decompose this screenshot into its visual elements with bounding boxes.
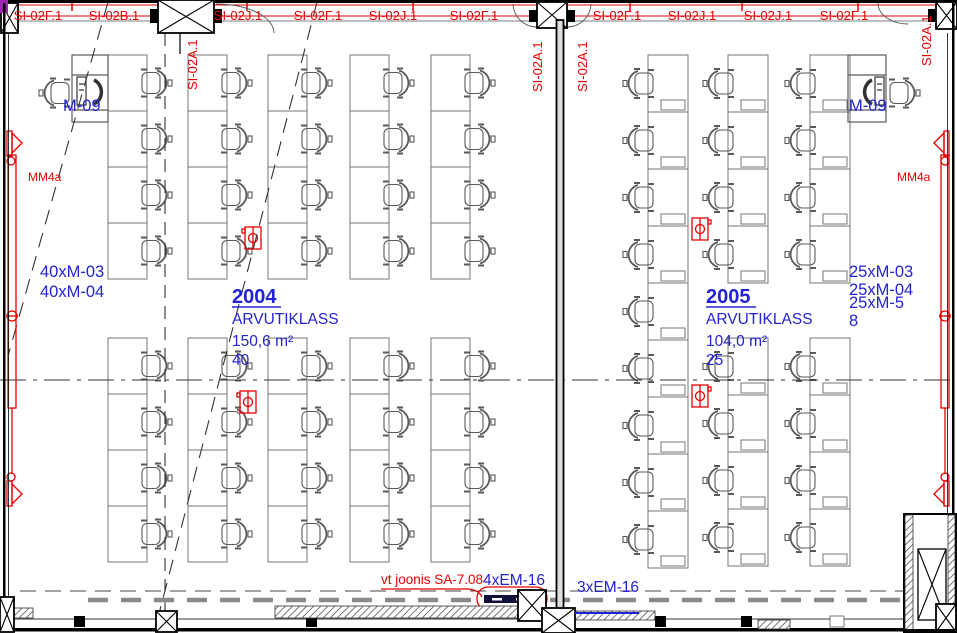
desk-computer bbox=[661, 157, 685, 167]
desk-computer bbox=[741, 497, 765, 507]
desk bbox=[431, 450, 470, 506]
desk-computer bbox=[741, 100, 765, 110]
stair-shaft bbox=[904, 514, 957, 633]
room-seats: 40 bbox=[232, 352, 250, 369]
furniture-code: 25xM-5 bbox=[849, 294, 904, 312]
desk bbox=[108, 338, 147, 394]
column bbox=[156, 611, 177, 632]
desk bbox=[431, 167, 470, 223]
desk bbox=[268, 223, 307, 279]
column bbox=[542, 608, 575, 633]
wall-equipment-label: MM4a bbox=[897, 170, 931, 184]
desk-computer bbox=[741, 440, 765, 450]
room-number: 2004 bbox=[232, 286, 277, 308]
hatched-wall bbox=[758, 620, 790, 629]
desk-computer bbox=[823, 497, 847, 507]
desk-computer bbox=[823, 214, 847, 224]
desk bbox=[350, 450, 389, 506]
duct-label-vertical: SI-02A.1 bbox=[575, 41, 590, 92]
desk bbox=[431, 223, 470, 279]
desk bbox=[350, 223, 389, 279]
hatched-wall bbox=[275, 606, 518, 618]
desk-computer bbox=[661, 385, 685, 395]
furniture-code: 40xM-04 bbox=[40, 283, 104, 301]
duct-label: SI-02F.1 bbox=[14, 8, 62, 23]
desk-computer bbox=[661, 328, 685, 338]
desk-computer bbox=[823, 100, 847, 110]
duct-label-vertical: SI-02A.1 bbox=[185, 39, 200, 90]
desk bbox=[268, 394, 307, 450]
duct-label-vertical: SI-02A.1 bbox=[530, 41, 545, 92]
equipment-code: 4xEM-16 bbox=[483, 572, 545, 589]
column bbox=[158, 0, 214, 33]
desk bbox=[268, 506, 307, 562]
column bbox=[0, 597, 14, 632]
duct-label: SI-02J.1 bbox=[214, 8, 262, 23]
desk-computer bbox=[823, 554, 847, 564]
desk bbox=[188, 223, 227, 279]
duct-label-vertical: SI-02A.1 bbox=[919, 15, 934, 66]
room-name: ARVUTIKLASS bbox=[232, 311, 339, 328]
duct-label: SI-02F.1 bbox=[450, 8, 498, 23]
desk-computer bbox=[741, 157, 765, 167]
furniture-code: 25xM-03 bbox=[849, 263, 913, 281]
desk bbox=[108, 55, 147, 111]
desk bbox=[188, 111, 227, 167]
duct-label: SI-02J.1 bbox=[744, 8, 792, 23]
duct-label: SI-02J.1 bbox=[369, 8, 417, 23]
hatched-wall bbox=[13, 608, 33, 618]
duct-label: SI-02J.1 bbox=[668, 8, 716, 23]
wall-equipment-label: MM4a bbox=[28, 170, 62, 184]
desk bbox=[350, 55, 389, 111]
duct-label: SI-02F.1 bbox=[593, 8, 641, 23]
partition-wall bbox=[557, 20, 564, 612]
desk bbox=[350, 111, 389, 167]
desk-computer bbox=[661, 214, 685, 224]
desk bbox=[108, 223, 147, 279]
room-area: 150,6 m² bbox=[232, 333, 293, 350]
furniture-code: 40xM-03 bbox=[40, 263, 104, 281]
desk bbox=[350, 394, 389, 450]
desk-computer bbox=[823, 383, 847, 393]
desk bbox=[188, 506, 227, 562]
desk-computer bbox=[823, 271, 847, 281]
room-area: 104,0 m² bbox=[706, 333, 767, 350]
duct-label: SI-02F.1 bbox=[820, 8, 868, 23]
desk bbox=[108, 450, 147, 506]
desk bbox=[108, 111, 147, 167]
desk bbox=[431, 338, 470, 394]
room-name: ARVUTIKLASS bbox=[706, 311, 813, 328]
equipment-code: 3xEM-16 bbox=[577, 579, 639, 596]
desk bbox=[431, 506, 470, 562]
desk bbox=[268, 167, 307, 223]
furniture-code: 8 bbox=[849, 312, 858, 330]
desk-computer bbox=[661, 499, 685, 509]
teacher-station-label: M-09 bbox=[63, 97, 101, 115]
floor-plan: SI-02F.1 SI-02B.1 SI-02J.1 SI-02F.1 SI-0… bbox=[0, 0, 957, 633]
desk bbox=[431, 55, 470, 111]
desk bbox=[431, 111, 470, 167]
desk bbox=[350, 506, 389, 562]
desk-computer bbox=[741, 214, 765, 224]
desk-computer bbox=[741, 554, 765, 564]
duct-label: SI-02F.1 bbox=[294, 8, 342, 23]
desk-computer bbox=[661, 556, 685, 566]
desk-computer bbox=[823, 440, 847, 450]
desk bbox=[268, 55, 307, 111]
desk bbox=[268, 111, 307, 167]
desk bbox=[108, 167, 147, 223]
door-opening bbox=[830, 616, 844, 627]
desk bbox=[108, 506, 147, 562]
room-seats: 25 bbox=[706, 352, 723, 369]
desk bbox=[188, 167, 227, 223]
desk bbox=[350, 338, 389, 394]
detail-reference-note: vt joonis SA-7.08 bbox=[381, 572, 483, 587]
desk-computer bbox=[741, 383, 765, 393]
desk bbox=[108, 394, 147, 450]
room-number: 2005 bbox=[706, 286, 751, 308]
desk-computer bbox=[661, 442, 685, 452]
desk bbox=[431, 394, 470, 450]
desk-computer bbox=[661, 100, 685, 110]
desk bbox=[188, 394, 227, 450]
teacher-station-label: M-09 bbox=[849, 97, 887, 115]
desk-computer bbox=[823, 157, 847, 167]
desk-computer bbox=[741, 271, 765, 281]
desk bbox=[268, 450, 307, 506]
desk bbox=[350, 167, 389, 223]
desk bbox=[188, 338, 227, 394]
desk-computer bbox=[661, 271, 685, 281]
duct-label: SI-02B.1 bbox=[89, 8, 140, 23]
